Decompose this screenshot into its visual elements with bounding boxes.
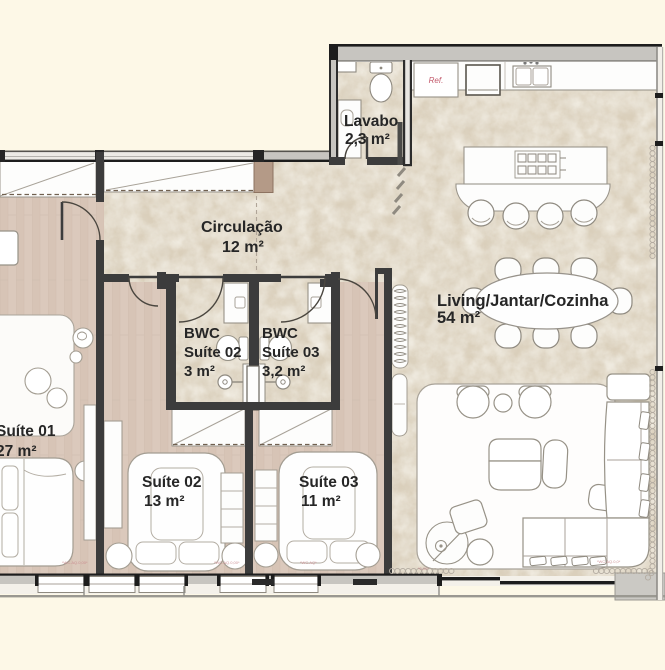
svg-text:*WC.AQ*: *WC.AQ* [300,560,317,565]
svg-text:*0,00*: *0,00* [418,566,429,571]
svg-text:BWC: BWC [262,325,298,342]
svg-text:Living/Jantar/Cozinha: Living/Jantar/Cozinha [437,292,609,310]
svg-text:Circulação: Circulação [201,219,283,236]
svg-text:27 m²: 27 m² [0,443,37,460]
svg-text:*WC.AQ.0,0*: *WC.AQ.0,0* [597,559,621,564]
svg-text:12 m²: 12 m² [222,239,264,256]
svg-text:*WC.AQ.0,00*: *WC.AQ.0,00* [62,560,88,565]
svg-text:Suíte 03: Suíte 03 [262,344,320,361]
svg-text:Suíte 03: Suíte 03 [299,474,359,491]
svg-text:13 m²: 13 m² [144,493,185,510]
svg-text:Suíte 02: Suíte 02 [142,474,201,491]
svg-text:2,3 m²: 2,3 m² [345,131,390,148]
svg-text:3 m²: 3 m² [184,363,215,380]
svg-text:Ref.: Ref. [429,76,444,85]
svg-text:BWC: BWC [184,325,220,342]
svg-text:*WC.AQ.0,00*: *WC.AQ.0,00* [214,560,240,565]
svg-text:54 m²: 54 m² [437,309,481,327]
svg-text:Suíte 02: Suíte 02 [184,344,242,361]
svg-text:Lavabo: Lavabo [344,113,398,130]
svg-text:3,2 m²: 3,2 m² [262,363,305,380]
svg-text:Suíte 01: Suíte 01 [0,423,56,440]
svg-text:11 m²: 11 m² [301,493,341,510]
